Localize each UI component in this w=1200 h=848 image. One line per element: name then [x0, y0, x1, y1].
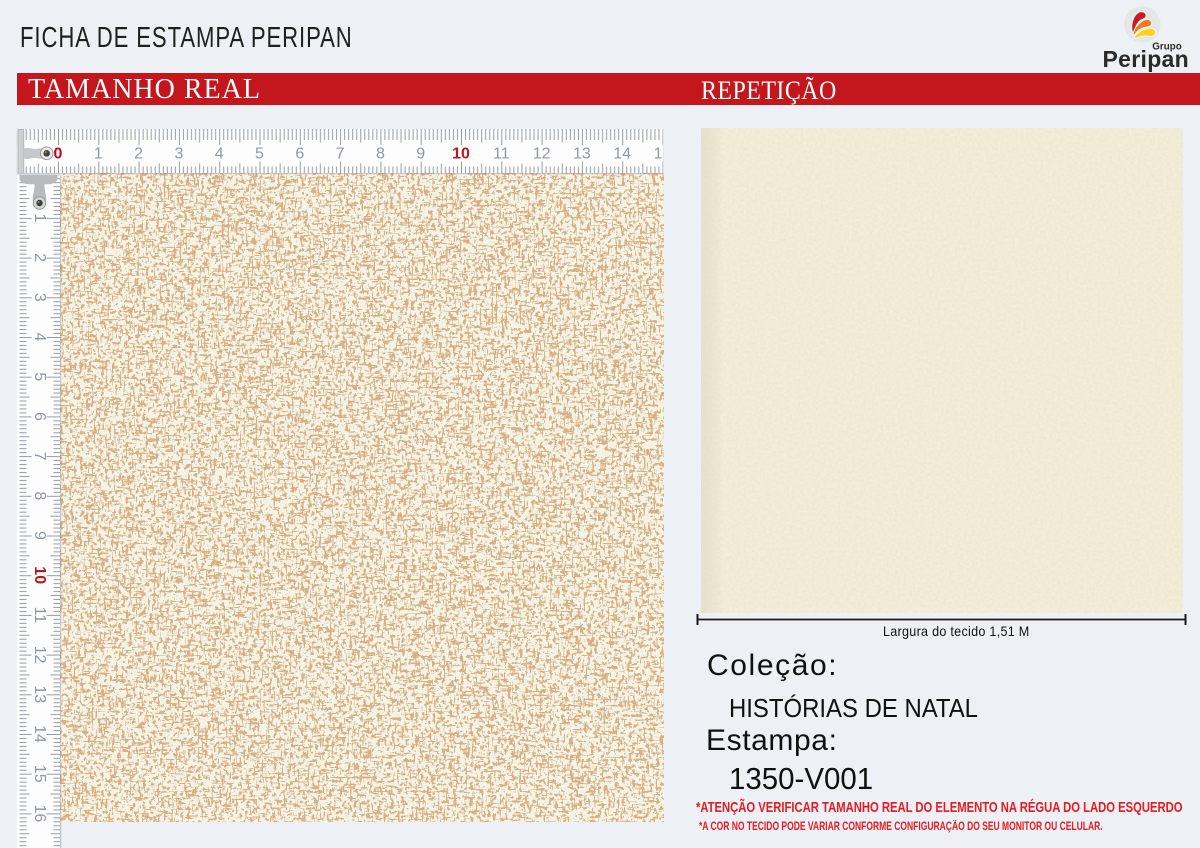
svg-text:15: 15 — [31, 765, 48, 783]
svg-text:7: 7 — [31, 452, 48, 461]
svg-text:10: 10 — [31, 566, 48, 584]
svg-text:7: 7 — [336, 146, 345, 163]
svg-text:9: 9 — [31, 531, 48, 540]
svg-text:12: 12 — [31, 646, 48, 664]
svg-text:8: 8 — [31, 491, 48, 500]
svg-text:1: 1 — [94, 146, 103, 163]
svg-text:10: 10 — [452, 146, 470, 163]
svg-text:4: 4 — [31, 333, 48, 342]
svg-text:14: 14 — [31, 725, 48, 743]
svg-text:14: 14 — [613, 146, 631, 163]
svg-text:2: 2 — [31, 253, 48, 262]
svg-text:15: 15 — [654, 146, 663, 163]
svg-text:5: 5 — [255, 146, 264, 163]
svg-text:3: 3 — [174, 146, 183, 163]
svg-text:1: 1 — [31, 213, 48, 222]
svg-text:13: 13 — [31, 685, 48, 703]
svg-text:9: 9 — [416, 146, 425, 163]
svg-text:3: 3 — [31, 293, 48, 302]
svg-text:11: 11 — [493, 146, 510, 163]
svg-text:4: 4 — [215, 146, 224, 163]
svg-text:13: 13 — [573, 146, 591, 163]
svg-text:Peripan: Peripan — [1103, 46, 1189, 72]
svg-text:2: 2 — [134, 146, 143, 163]
svg-text:6: 6 — [295, 146, 304, 163]
svg-text:8: 8 — [376, 146, 385, 163]
svg-text:6: 6 — [31, 412, 48, 421]
svg-text:11: 11 — [31, 607, 48, 624]
svg-text:0: 0 — [54, 146, 63, 163]
svg-text:5: 5 — [31, 372, 48, 381]
svg-text:16: 16 — [31, 805, 48, 823]
svg-text:12: 12 — [533, 146, 551, 163]
